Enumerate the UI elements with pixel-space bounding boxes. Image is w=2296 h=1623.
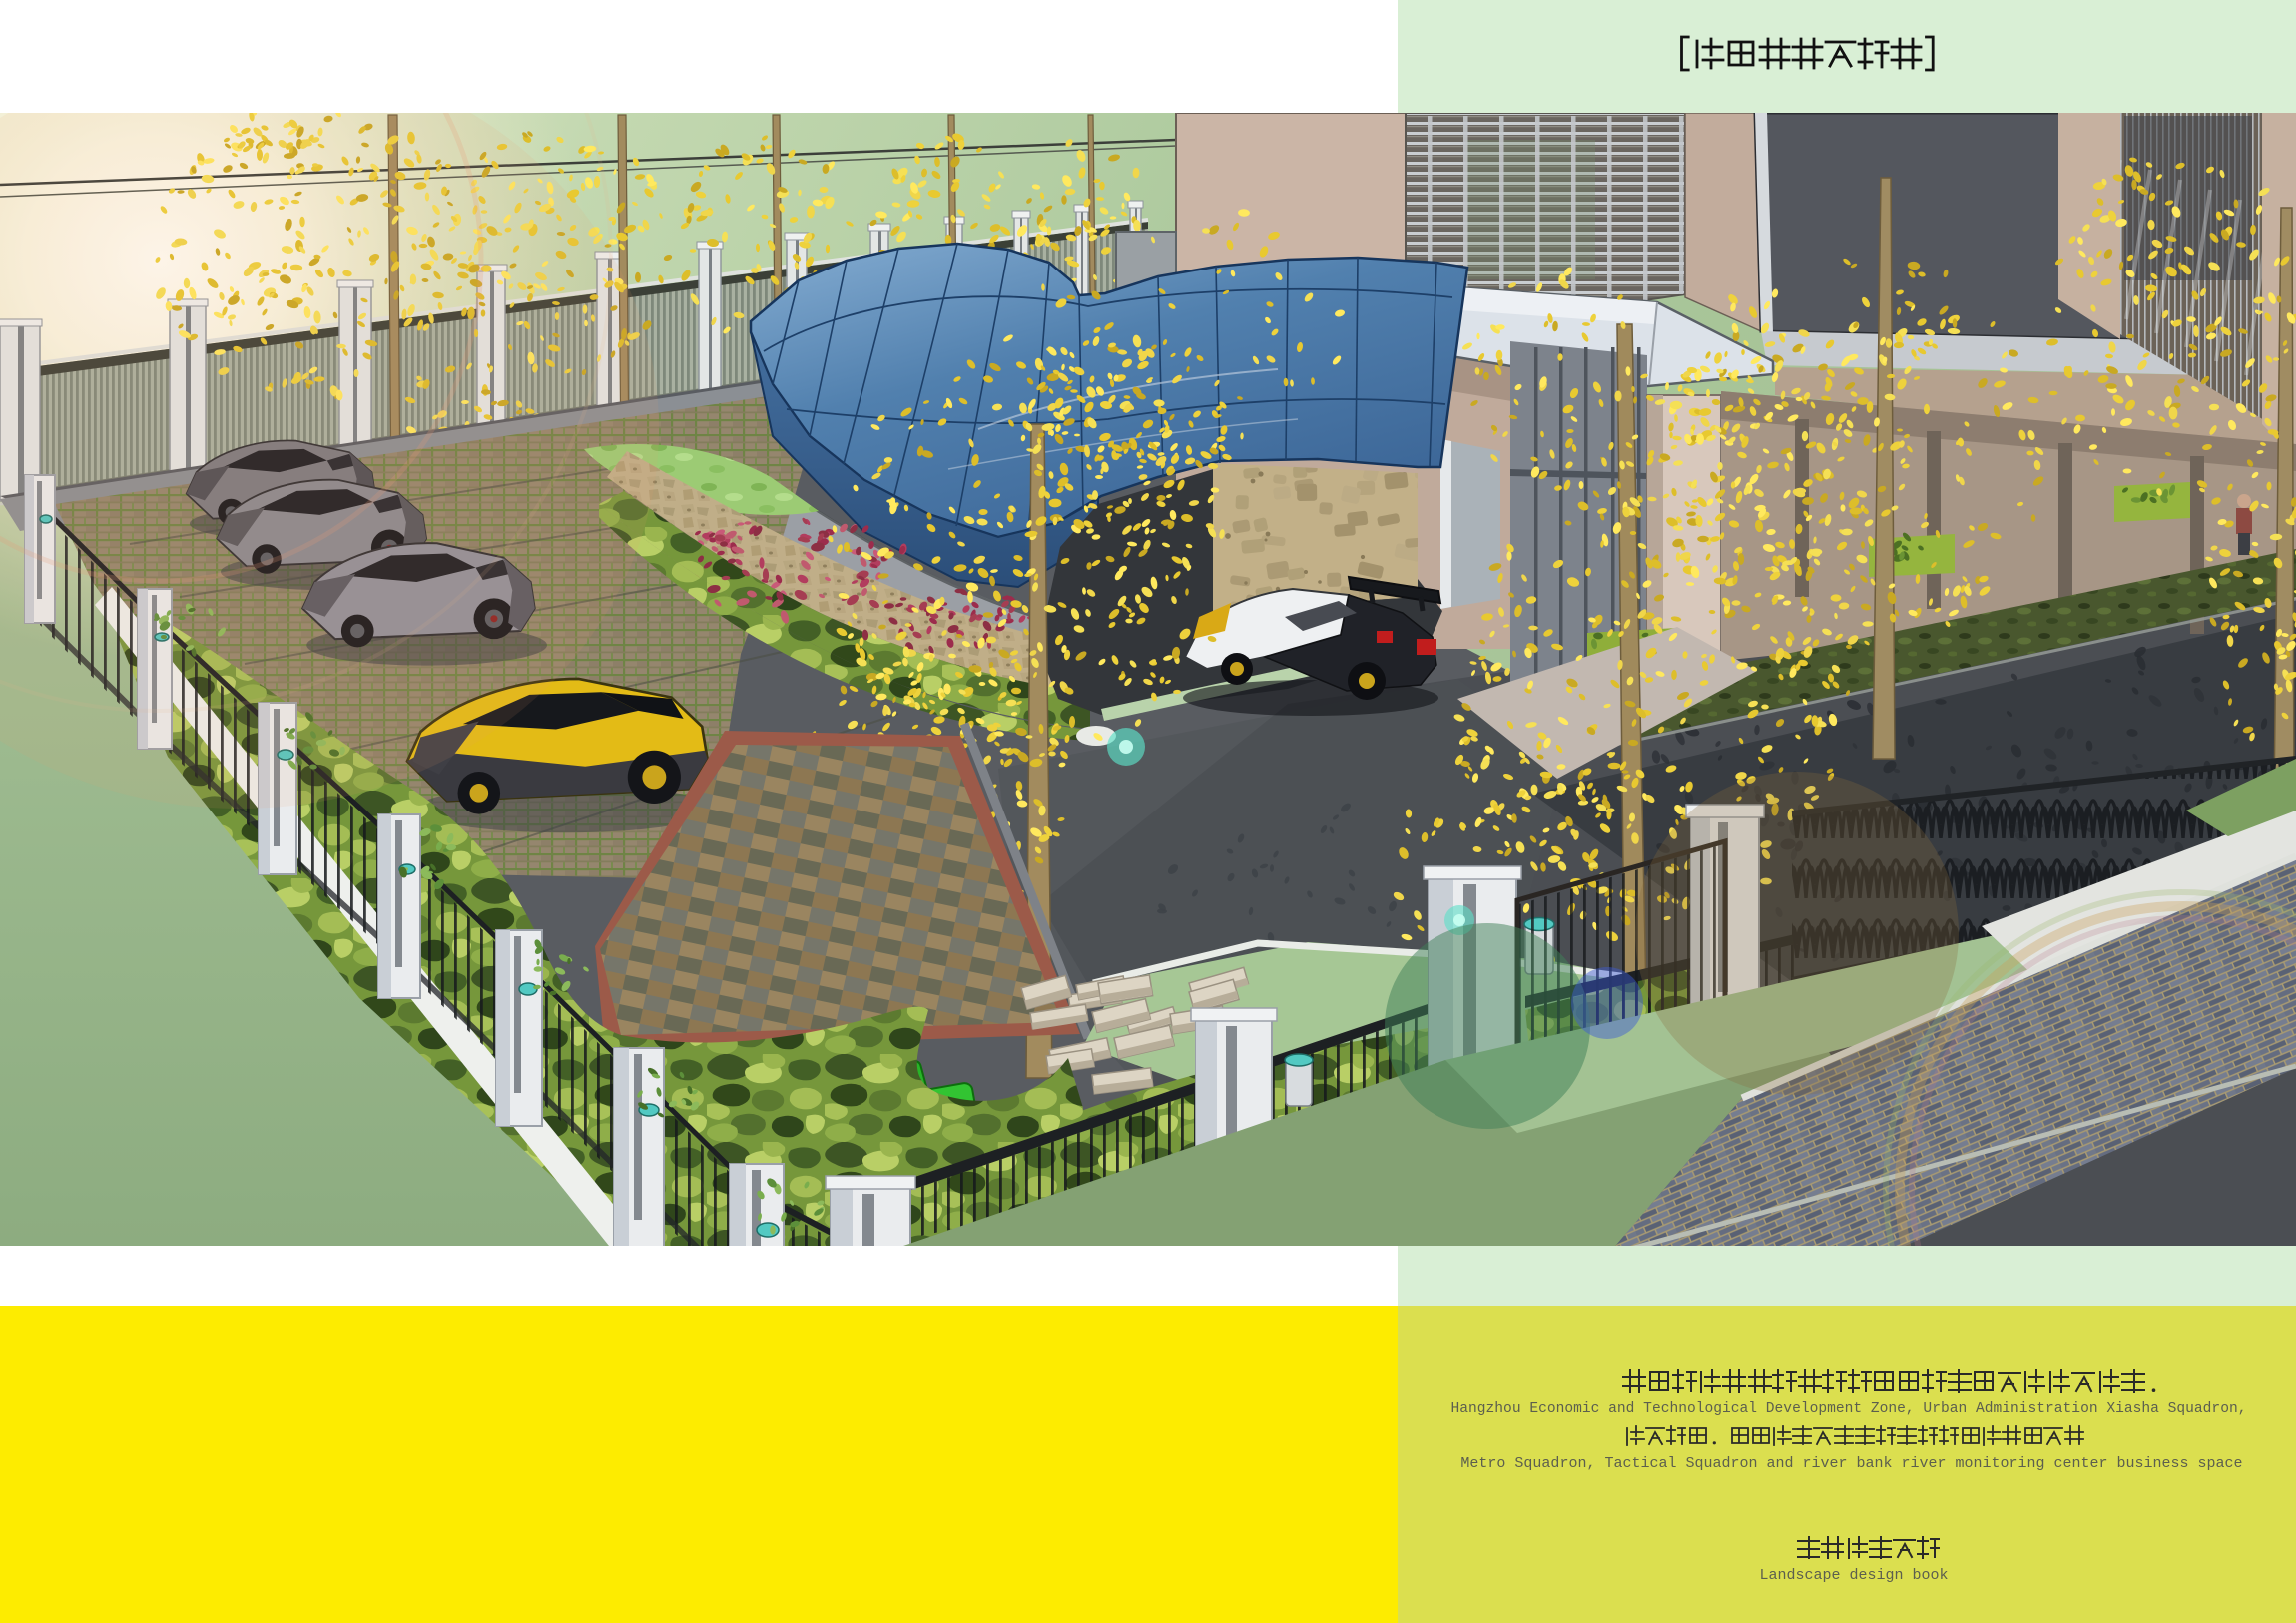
svg-text:Hangzhou Economic and Technolo: Hangzhou Economic and Technological Deve… [1451, 1401, 2247, 1417]
svg-text:Landscape design book: Landscape design book [1759, 1567, 1948, 1584]
svg-text:Metro Squadron, Tactical Squad: Metro Squadron, Tactical Squadron and ri… [1460, 1455, 2242, 1472]
